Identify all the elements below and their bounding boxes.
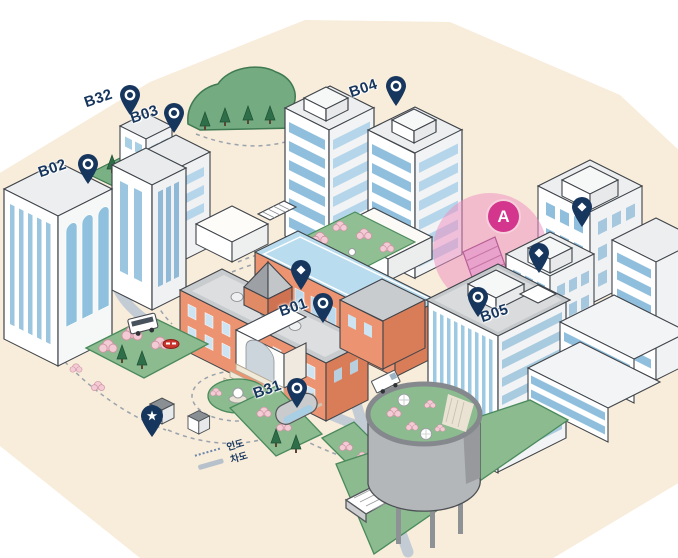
map-pin-b02[interactable] bbox=[76, 153, 100, 185]
map-pin-b04[interactable] bbox=[384, 75, 408, 107]
map-pin-unlabeled-2[interactable] bbox=[570, 196, 594, 228]
bus-stop-sign bbox=[163, 340, 179, 349]
map-pin-b05[interactable] bbox=[466, 286, 490, 318]
map-pin-b32[interactable] bbox=[118, 84, 142, 116]
campus-map: B32 B03 B02 B04 B01 B05 B31 A 인도 차도 bbox=[0, 0, 678, 558]
map-pin-unlabeled-1[interactable] bbox=[289, 259, 313, 291]
campus-illustration bbox=[0, 0, 678, 558]
entrance-marker-a[interactable]: A bbox=[488, 201, 519, 232]
map-pin-b01[interactable] bbox=[311, 292, 335, 324]
map-pin-b31[interactable] bbox=[285, 377, 309, 409]
map-pin-b03[interactable] bbox=[162, 102, 186, 134]
map-pin-unlabeled-3[interactable] bbox=[527, 242, 551, 274]
main-gate-pin[interactable] bbox=[139, 404, 165, 438]
